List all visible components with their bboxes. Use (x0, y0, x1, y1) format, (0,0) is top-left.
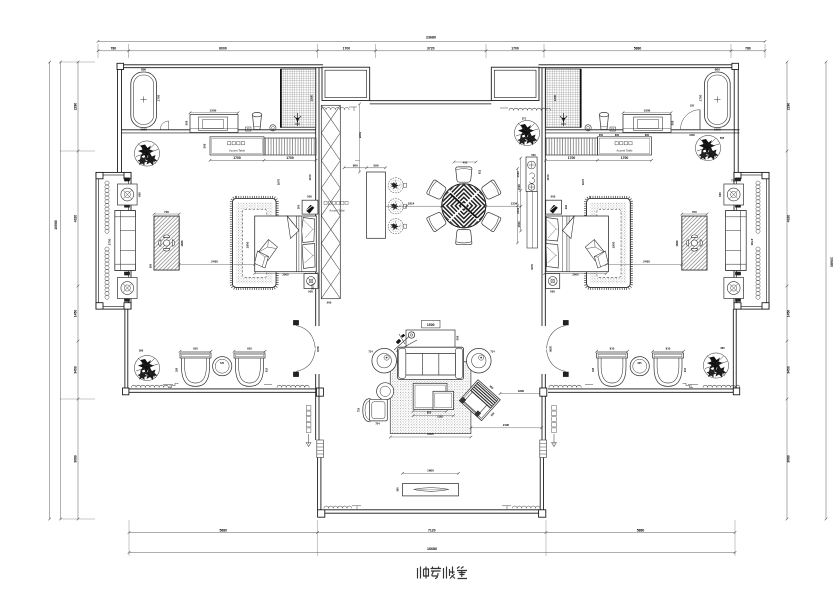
svg-text:1000: 1000 (714, 128, 721, 132)
svg-text:500: 500 (327, 301, 332, 305)
svg-text:650: 650 (599, 134, 604, 137)
svg-text:1500: 1500 (517, 184, 521, 191)
svg-text:910: 910 (193, 347, 198, 351)
svg-text:1500: 1500 (644, 109, 651, 113)
svg-text:700: 700 (692, 210, 697, 214)
svg-text:3279: 3279 (311, 284, 315, 290)
svg-text:825: 825 (427, 410, 432, 414)
svg-text:3680: 3680 (74, 455, 78, 463)
svg-text:1670: 1670 (277, 178, 281, 185)
svg-text:1450: 1450 (74, 310, 78, 318)
svg-text:360: 360 (139, 349, 144, 353)
svg-text:1670: 1670 (581, 178, 585, 185)
svg-text:910: 910 (247, 347, 252, 351)
svg-text:2400: 2400 (427, 432, 434, 436)
svg-text:912: 912 (477, 169, 481, 174)
svg-text:16680: 16680 (427, 547, 437, 551)
svg-text:500: 500 (531, 153, 536, 157)
svg-text:6000: 6000 (219, 47, 227, 51)
svg-text:3450: 3450 (787, 366, 791, 374)
svg-text:720: 720 (356, 407, 360, 412)
svg-text:1700: 1700 (343, 47, 351, 51)
svg-text:800: 800 (645, 134, 650, 137)
svg-text:2000: 2000 (282, 273, 289, 277)
svg-text:780: 780 (745, 47, 751, 51)
svg-text:1200: 1200 (553, 94, 557, 101)
svg-text:5880: 5880 (637, 528, 645, 532)
svg-text:168: 168 (176, 367, 179, 372)
svg-text:1500: 1500 (210, 109, 217, 113)
svg-text:3279: 3279 (530, 264, 534, 270)
svg-text:910: 910 (666, 347, 671, 351)
svg-text:2280: 2280 (787, 103, 791, 111)
svg-text:400: 400 (463, 161, 468, 165)
svg-text:1800: 1800 (246, 241, 250, 248)
svg-text:1700: 1700 (286, 156, 294, 160)
svg-text:500: 500 (551, 195, 556, 199)
svg-text:390: 390 (149, 263, 153, 268)
svg-text:565: 565 (720, 136, 725, 140)
svg-text:500: 500 (203, 143, 207, 148)
svg-text:7120: 7120 (428, 528, 436, 532)
svg-text:780: 780 (110, 47, 116, 51)
svg-text:1382: 1382 (437, 415, 443, 419)
svg-text:23680: 23680 (426, 36, 436, 40)
svg-text:1750: 1750 (157, 94, 161, 101)
svg-text:700: 700 (164, 210, 169, 214)
svg-text:2350: 2350 (310, 94, 314, 101)
svg-text:2700: 2700 (108, 238, 112, 245)
svg-text:500: 500 (550, 290, 555, 294)
svg-text:350: 350 (396, 487, 400, 492)
svg-text:1000: 1000 (140, 128, 147, 132)
svg-text:5880: 5880 (634, 47, 642, 51)
svg-text:500: 500 (185, 120, 189, 125)
svg-text:500: 500 (456, 335, 460, 340)
svg-text:4320: 4320 (74, 215, 78, 223)
svg-text:900: 900 (353, 164, 358, 168)
svg-text:2281: 2281 (358, 131, 362, 138)
svg-text:500: 500 (307, 195, 312, 199)
svg-text:2190: 2190 (503, 423, 510, 427)
svg-text:600: 600 (718, 192, 722, 197)
svg-text:910: 910 (684, 367, 687, 372)
svg-text:2280: 2280 (74, 103, 78, 111)
svg-text:1800: 1800 (427, 469, 434, 473)
svg-text:590: 590 (373, 164, 378, 168)
svg-text:1814: 1814 (408, 202, 415, 206)
svg-text:800: 800 (715, 68, 720, 72)
svg-text:2700: 2700 (750, 239, 754, 246)
svg-text:714: 714 (368, 350, 373, 354)
svg-text:Accent Table: Accent Table (229, 149, 246, 153)
svg-text:325: 325 (637, 362, 642, 365)
svg-text:714: 714 (490, 350, 495, 354)
svg-text:500: 500 (671, 120, 675, 125)
svg-text:10680: 10680 (830, 257, 834, 267)
svg-text:910: 910 (610, 347, 615, 351)
svg-text:5880: 5880 (219, 528, 227, 532)
svg-text:1700: 1700 (621, 156, 629, 160)
svg-text:600: 600 (138, 192, 142, 197)
svg-text:1500: 1500 (516, 171, 520, 178)
svg-text:300: 300 (297, 204, 301, 209)
svg-text:1500: 1500 (516, 207, 520, 214)
svg-text:1500: 1500 (427, 323, 435, 327)
svg-text:3720: 3720 (427, 47, 435, 51)
svg-text:1234: 1234 (511, 202, 518, 206)
svg-text:910: 910 (266, 367, 269, 372)
svg-text:800: 800 (615, 134, 620, 137)
svg-text:754: 754 (375, 422, 380, 426)
svg-text:3450: 3450 (74, 366, 78, 374)
svg-text:2430: 2430 (643, 260, 650, 264)
svg-text:725: 725 (220, 362, 225, 365)
svg-text:1800: 1800 (612, 241, 616, 248)
svg-text:1700: 1700 (511, 47, 519, 51)
svg-text:600: 600 (125, 179, 130, 183)
svg-text:150: 150 (690, 105, 695, 108)
svg-text:365: 365 (720, 346, 725, 350)
svg-text:2000: 2000 (572, 273, 579, 277)
svg-text:1500: 1500 (517, 221, 521, 228)
svg-text:1750: 1750 (699, 94, 703, 101)
svg-text:3680: 3680 (787, 455, 791, 463)
svg-text:4320: 4320 (787, 215, 791, 223)
svg-text:1000: 1000 (549, 346, 553, 352)
svg-text:1000: 1000 (316, 346, 320, 352)
svg-text:10680: 10680 (54, 220, 58, 230)
svg-text:1886: 1886 (675, 240, 679, 247)
svg-text:2430: 2430 (211, 260, 218, 264)
svg-text:168: 168 (592, 367, 595, 372)
svg-text:1450: 1450 (787, 310, 791, 318)
svg-text:1370: 1370 (546, 174, 550, 181)
svg-text:750: 750 (731, 179, 736, 183)
svg-text:1000: 1000 (689, 134, 695, 137)
svg-text:800: 800 (141, 68, 146, 72)
svg-text:Accent Table: Accent Table (329, 210, 345, 213)
svg-text:1890: 1890 (518, 389, 525, 393)
svg-text:1886: 1886 (180, 240, 184, 247)
svg-text:300: 300 (564, 205, 568, 210)
svg-text:Accent Table: Accent Table (617, 149, 634, 153)
svg-text:371: 371 (522, 117, 527, 121)
svg-text:1700: 1700 (233, 156, 241, 160)
svg-text:1700: 1700 (568, 156, 576, 160)
svg-text:1370: 1370 (308, 174, 312, 181)
